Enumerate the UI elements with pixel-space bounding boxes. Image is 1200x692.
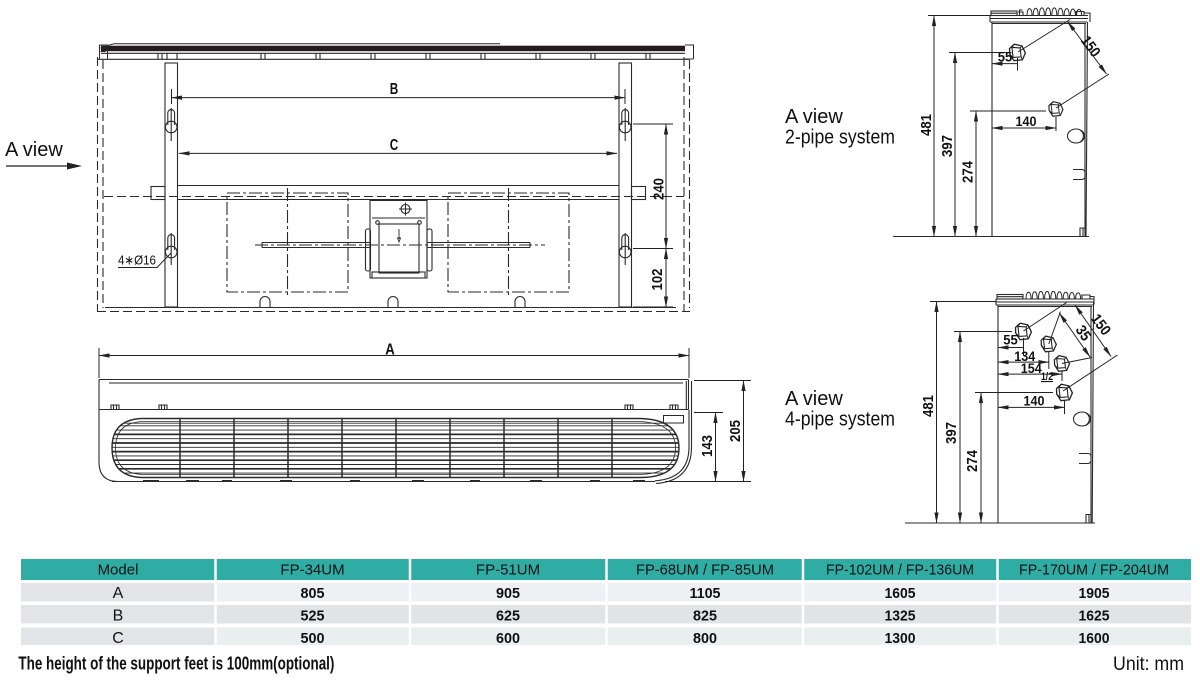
svg-text:A: A	[113, 585, 124, 602]
svg-text:B: B	[390, 81, 399, 98]
svg-text:154: 154	[1021, 360, 1042, 376]
svg-text:500: 500	[301, 630, 325, 647]
svg-text:143: 143	[699, 435, 716, 457]
svg-text:A: A	[385, 342, 395, 359]
svg-text:1325: 1325	[885, 608, 916, 625]
svg-text:1300: 1300	[885, 630, 916, 647]
svg-text:1625: 1625	[1079, 608, 1110, 625]
svg-text:1105: 1105	[690, 585, 721, 602]
svg-text:600: 600	[496, 630, 520, 647]
svg-text:B: B	[113, 608, 124, 625]
svg-text:905: 905	[496, 585, 520, 602]
svg-text:140: 140	[1024, 393, 1045, 409]
svg-text:397: 397	[939, 135, 956, 157]
svg-text:805: 805	[301, 585, 325, 602]
svg-text:1600: 1600	[1079, 630, 1110, 647]
svg-text:The height of the support feet: The height of the support feet is 100mm(…	[18, 654, 334, 674]
svg-text:240: 240	[651, 178, 668, 200]
svg-text:800: 800	[693, 630, 717, 647]
svg-text:FP-102UM / FP-136UM: FP-102UM / FP-136UM	[826, 562, 974, 579]
svg-text:481: 481	[920, 395, 937, 417]
svg-text:FP-170UM / FP-204UM: FP-170UM / FP-204UM	[1019, 562, 1169, 579]
svg-text:1/2: 1/2	[1041, 371, 1053, 383]
svg-text:274: 274	[964, 449, 981, 472]
svg-text:1905: 1905	[1079, 585, 1110, 602]
svg-text:825: 825	[693, 608, 717, 625]
svg-text:397: 397	[943, 422, 960, 444]
svg-text:55: 55	[998, 49, 1013, 65]
svg-text:C: C	[112, 630, 124, 647]
svg-text:A view: A view	[785, 388, 843, 410]
svg-text:Unit: mm: Unit: mm	[1113, 654, 1184, 675]
svg-text:A view: A view	[5, 139, 63, 161]
svg-text:A view: A view	[785, 106, 843, 128]
svg-text:625: 625	[496, 608, 520, 625]
svg-text:2-pipe system: 2-pipe system	[785, 127, 895, 149]
svg-text:C: C	[390, 137, 399, 154]
svg-text:150: 150	[1077, 33, 1104, 61]
svg-text:55: 55	[1003, 332, 1018, 348]
svg-text:FP-51UM: FP-51UM	[476, 562, 540, 579]
svg-text:1605: 1605	[885, 585, 916, 602]
svg-text:4∗Ø16: 4∗Ø16	[118, 253, 156, 268]
svg-text:525: 525	[301, 608, 325, 625]
svg-text:Model: Model	[98, 562, 139, 579]
svg-text:140: 140	[1016, 113, 1037, 129]
svg-text:FP-34UM: FP-34UM	[280, 562, 344, 579]
svg-text:4-pipe system: 4-pipe system	[785, 409, 895, 431]
svg-text:481: 481	[918, 114, 935, 136]
svg-text:274: 274	[960, 160, 977, 183]
svg-text:FP-68UM / FP-85UM: FP-68UM / FP-85UM	[636, 562, 774, 579]
svg-text:102: 102	[649, 269, 666, 291]
svg-text:205: 205	[727, 420, 744, 442]
